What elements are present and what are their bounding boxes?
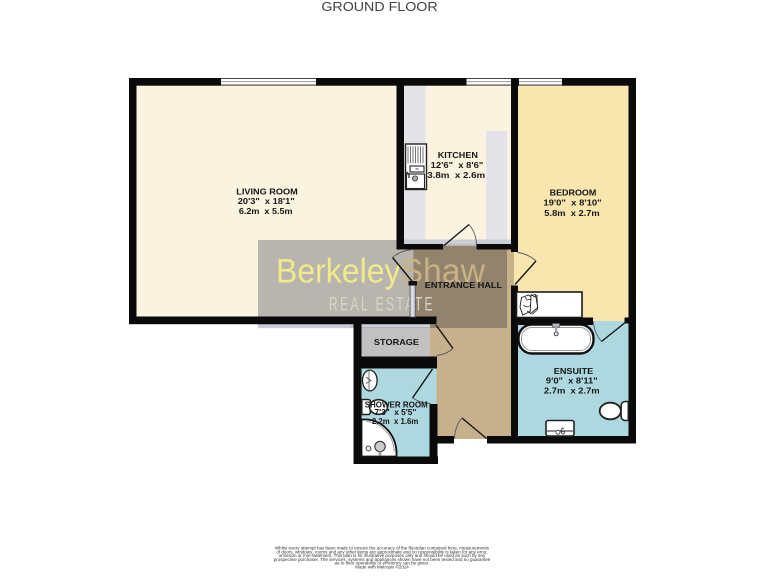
svg-text:12'6" x 8'6": 12'6" x 8'6" xyxy=(431,161,484,170)
svg-text:19'0" x 8'10": 19'0" x 8'10" xyxy=(543,199,601,208)
svg-text:LIVING ROOM: LIVING ROOM xyxy=(236,187,298,196)
svg-text:REAL ESTATE: REAL ESTATE xyxy=(329,294,435,316)
svg-text:BEDROOM: BEDROOM xyxy=(550,188,597,197)
svg-text:2.2m x 1.6m: 2.2m x 1.6m xyxy=(372,417,418,426)
svg-text:3.8m x 2.6m: 3.8m x 2.6m xyxy=(427,171,485,180)
svg-text:Berkeley: Berkeley xyxy=(276,252,401,290)
svg-text:STORAGE: STORAGE xyxy=(374,338,420,347)
svg-text:KITCHEN: KITCHEN xyxy=(438,151,478,160)
svg-text:2.7m x 2.7m: 2.7m x 2.7m xyxy=(544,387,600,396)
svg-text:Made with Metropix ©2024: Made with Metropix ©2024 xyxy=(355,564,409,570)
svg-text:GROUND FLOOR: GROUND FLOOR xyxy=(321,0,437,14)
svg-text:ENTRANCE HALL: ENTRANCE HALL xyxy=(425,280,502,290)
svg-text:6.2m x 5.5m: 6.2m x 5.5m xyxy=(239,207,293,216)
svg-text:ENSUITE: ENSUITE xyxy=(554,367,594,376)
svg-text:20'3" x 18'1": 20'3" x 18'1" xyxy=(238,197,295,206)
svg-text:9'0" x 8'11": 9'0" x 8'11" xyxy=(546,377,598,386)
svg-text:5.8m x 2.7m: 5.8m x 2.7m xyxy=(544,209,599,218)
svg-text:7'3" x 5'5": 7'3" x 5'5" xyxy=(375,408,417,417)
